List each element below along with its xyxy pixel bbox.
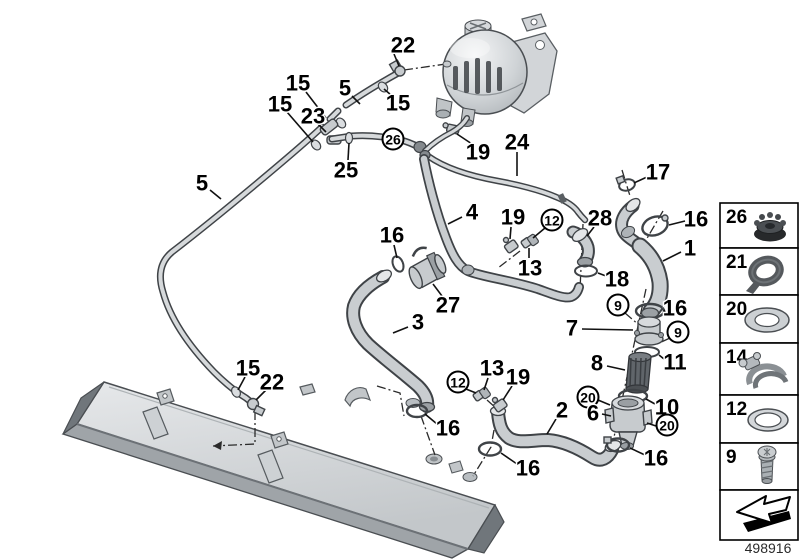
thumb-20-number: 20 <box>726 299 747 320</box>
svg-text:12: 12 <box>544 213 560 229</box>
callout-5[interactable]: 5 <box>339 76 351 101</box>
svg-text:28: 28 <box>588 206 612 231</box>
callout-22[interactable]: 22 <box>260 370 284 395</box>
svg-text:23: 23 <box>301 104 325 129</box>
fitting-13 <box>472 387 491 402</box>
svg-text:22: 22 <box>260 370 284 395</box>
svg-text:9: 9 <box>674 325 682 341</box>
callout-16[interactable]: 16 <box>436 416 460 441</box>
callout-12-circled[interactable]: 12 <box>448 372 469 393</box>
thermostat-stack <box>604 304 664 452</box>
callout-25[interactable]: 25 <box>334 158 358 183</box>
svg-text:15: 15 <box>236 356 260 381</box>
callout-leader-3 <box>393 327 408 333</box>
fitting-22-bottom <box>248 399 265 416</box>
svg-text:17: 17 <box>646 160 670 185</box>
svg-text:9: 9 <box>614 298 622 314</box>
part-number: 498916 <box>745 540 792 556</box>
svg-text:4: 4 <box>466 200 479 225</box>
svg-text:15: 15 <box>386 91 410 116</box>
coupling-27 <box>401 242 450 290</box>
callout-leader-20 <box>598 400 610 405</box>
callout-24[interactable]: 24 <box>505 130 530 155</box>
svg-text:2: 2 <box>556 398 568 423</box>
radiator <box>63 382 504 558</box>
callout-27[interactable]: 27 <box>436 293 460 318</box>
clip-25 <box>346 133 353 144</box>
callout-9-circled[interactable]: 9 <box>608 295 629 316</box>
svg-text:16: 16 <box>663 296 687 321</box>
svg-text:16: 16 <box>516 456 540 481</box>
clamp-16 <box>390 255 405 274</box>
svg-text:25: 25 <box>334 158 358 183</box>
callout-leader-16 <box>630 448 645 455</box>
callout-leader-4 <box>448 217 462 224</box>
callout-28[interactable]: 28 <box>588 206 612 231</box>
callout-16[interactable]: 16 <box>663 296 687 321</box>
svg-text:22: 22 <box>391 33 415 58</box>
callout-19[interactable]: 19 <box>501 205 525 230</box>
callout-leader-2 <box>547 419 556 434</box>
callout-15[interactable]: 15 <box>268 92 292 117</box>
svg-text:11: 11 <box>663 350 686 375</box>
svg-text:16: 16 <box>684 207 708 232</box>
callout-leader-12 <box>533 228 545 238</box>
svg-text:16: 16 <box>380 223 404 248</box>
callout-8[interactable]: 8 <box>591 351 603 376</box>
svg-text:3: 3 <box>412 310 424 335</box>
callout-3[interactable]: 3 <box>412 310 424 335</box>
svg-text:12: 12 <box>450 375 466 391</box>
svg-text:5: 5 <box>196 171 208 196</box>
clamp-16 <box>640 213 671 239</box>
parts-diagram-page: 26 21 20 <box>0 0 800 560</box>
clamp-17 <box>616 176 636 193</box>
hose-2 <box>472 387 622 460</box>
svg-text:7: 7 <box>566 316 578 341</box>
svg-text:6: 6 <box>587 401 599 426</box>
thumb-26[interactable]: 26 <box>720 203 798 248</box>
thumb-direction[interactable] <box>720 490 798 540</box>
callout-13[interactable]: 13 <box>518 256 542 281</box>
svg-text:20: 20 <box>659 418 675 434</box>
radiator-port <box>463 473 477 482</box>
pipe-25 <box>332 133 426 153</box>
svg-text:13: 13 <box>518 256 542 281</box>
callout-15[interactable]: 15 <box>236 356 260 381</box>
svg-text:19: 19 <box>466 140 490 165</box>
callout-26-circled[interactable]: 26 <box>383 129 404 150</box>
svg-text:26: 26 <box>385 132 401 148</box>
expansion-tank <box>436 14 557 134</box>
callout-leader-12 <box>466 389 476 393</box>
callout-16[interactable]: 16 <box>684 207 708 232</box>
callout-9-circled[interactable]: 9 <box>668 322 689 343</box>
thumb-20[interactable]: 20 <box>720 295 798 343</box>
fitting-7 <box>635 317 664 345</box>
svg-text:27: 27 <box>436 293 460 318</box>
callout-20-circled[interactable]: 20 <box>657 415 678 436</box>
callout-leader-1 <box>663 252 681 261</box>
seal-ring-icon <box>748 409 788 431</box>
svg-text:19: 19 <box>501 205 525 230</box>
callout-leader-8 <box>607 366 625 370</box>
thumb-12[interactable]: 12 <box>720 395 798 443</box>
callout-23[interactable]: 23 <box>301 104 325 129</box>
callout-4[interactable]: 4 <box>466 200 479 225</box>
callout-19[interactable]: 19 <box>466 140 490 165</box>
svg-text:19: 19 <box>506 365 530 390</box>
thumb-9-number: 9 <box>726 447 737 468</box>
washer-icon <box>745 308 789 332</box>
filter-8 <box>626 353 651 394</box>
callout-7[interactable]: 7 <box>566 316 578 341</box>
callout-11[interactable]: 11 <box>663 350 686 375</box>
callout-2[interactable]: 2 <box>556 398 568 423</box>
elbow-28 <box>570 226 597 276</box>
callout-15[interactable]: 15 <box>386 91 410 116</box>
callout-5[interactable]: 5 <box>196 171 208 196</box>
callout-1[interactable]: 1 <box>684 236 696 261</box>
thumb-9[interactable]: 9 <box>720 443 798 490</box>
svg-text:15: 15 <box>268 92 292 117</box>
svg-text:18: 18 <box>605 267 629 292</box>
callout-leader-10 <box>646 399 655 404</box>
callout-leader-7 <box>582 329 633 330</box>
callout-13[interactable]: 13 <box>480 356 504 381</box>
thumb-14[interactable]: 14 <box>720 343 798 395</box>
callout-leader-16 <box>669 221 685 225</box>
callout-16[interactable]: 16 <box>380 223 404 248</box>
callout-19[interactable]: 19 <box>506 365 530 390</box>
thumbnail-panel: 26 21 20 <box>720 203 798 556</box>
callout-leader-5 <box>210 190 221 199</box>
thumb-26-number: 26 <box>726 207 747 228</box>
clamp-19 <box>504 238 519 254</box>
callout-18[interactable]: 18 <box>605 267 629 292</box>
svg-text:16: 16 <box>436 416 460 441</box>
svg-text:1: 1 <box>684 236 696 261</box>
callout-leader-16 <box>501 453 517 464</box>
callout-16[interactable]: 16 <box>516 456 540 481</box>
svg-text:8: 8 <box>591 351 603 376</box>
svg-text:16: 16 <box>644 446 668 471</box>
thumb-12-number: 12 <box>726 399 747 420</box>
thumb-21[interactable]: 21 <box>720 248 798 295</box>
callout-16[interactable]: 16 <box>644 446 668 471</box>
callout-22[interactable]: 22 <box>391 33 415 58</box>
callout-6[interactable]: 6 <box>587 401 599 426</box>
svg-text:5: 5 <box>339 76 351 101</box>
callout-17[interactable]: 17 <box>646 160 670 185</box>
svg-text:24: 24 <box>505 130 530 155</box>
thumb-21-number: 21 <box>726 252 748 273</box>
callout-12-circled[interactable]: 12 <box>542 210 563 231</box>
svg-text:13: 13 <box>480 356 504 381</box>
cooling-hoses-diagram: 26 21 20 <box>0 0 800 560</box>
